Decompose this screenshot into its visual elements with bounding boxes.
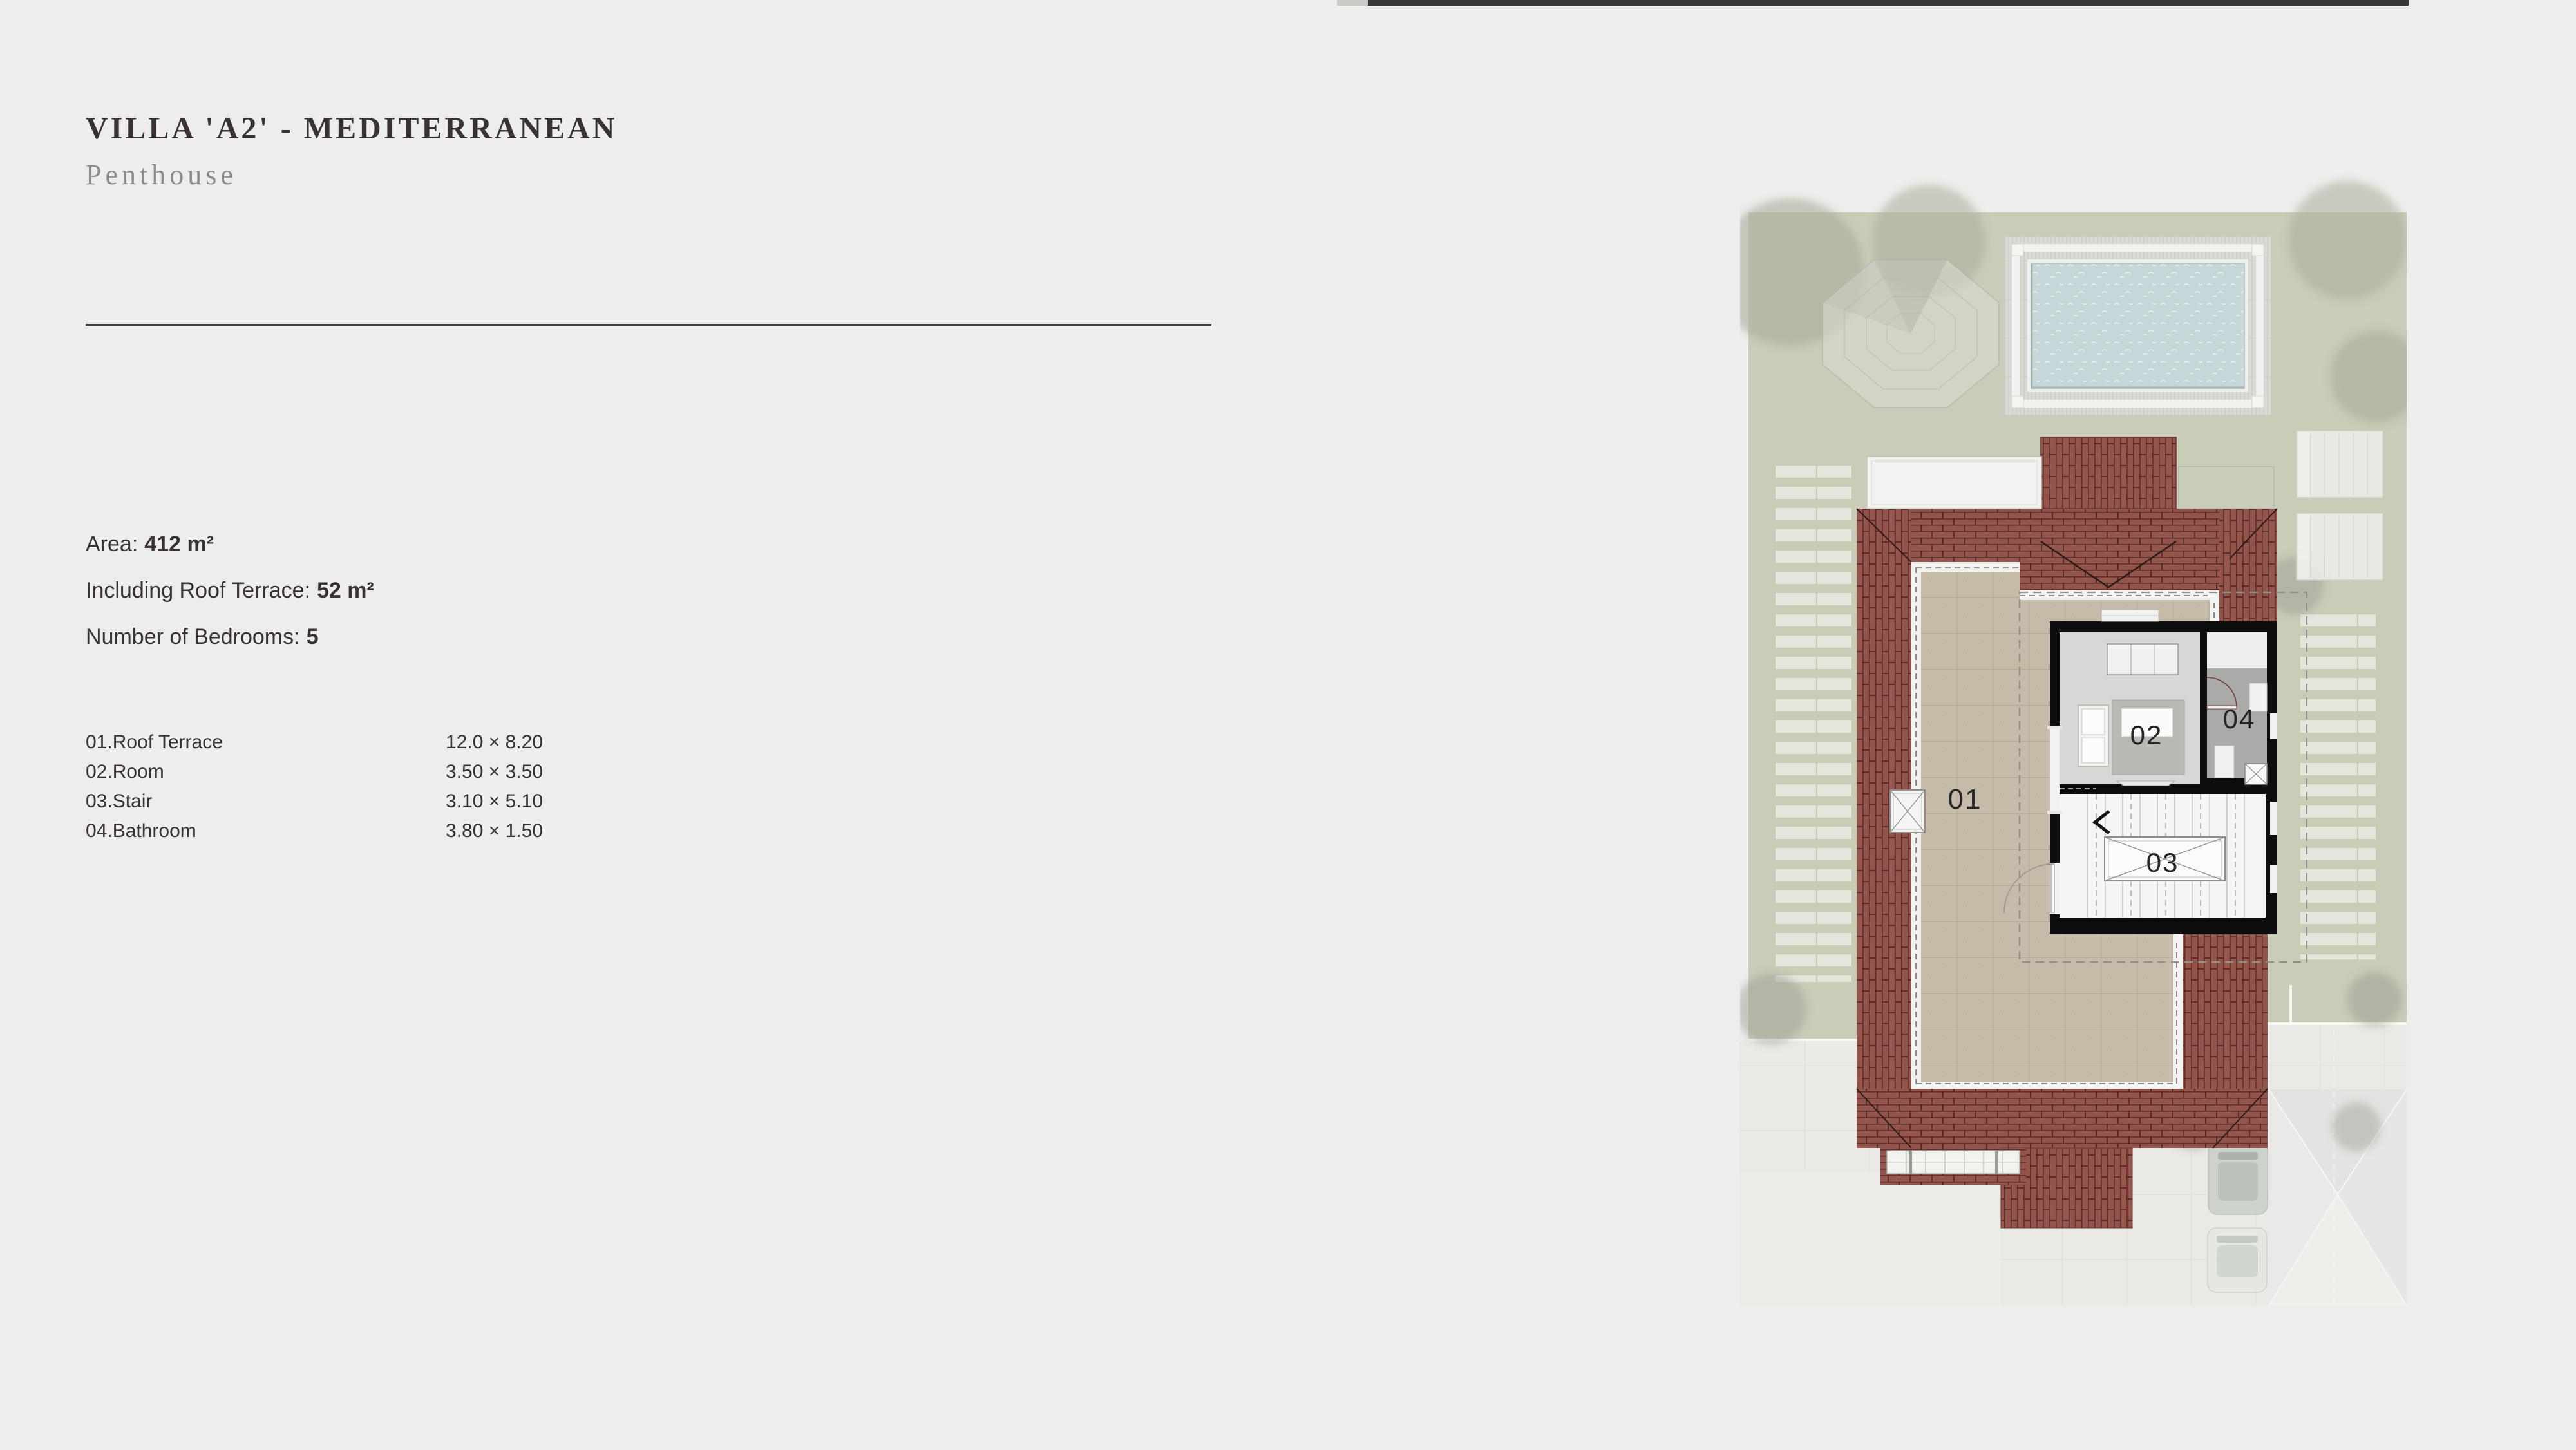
terrace-skylight (1890, 790, 1925, 833)
room-label-03: 03 (2146, 847, 2179, 878)
room-dimensions: 12.0 × 8.20 (401, 728, 543, 757)
page-subtitle: Penthouse (86, 158, 237, 191)
room-name: 03.Stair (86, 787, 152, 816)
room-dimensions: 3.10 × 5.10 (401, 787, 543, 816)
sofa (2078, 705, 2108, 766)
hedge-right (2300, 612, 2376, 959)
floor-plan: 01 02 03 04 (1740, 164, 2407, 1306)
detail-value: 412 m² (144, 532, 214, 556)
page-title: VILLA 'A2' - MEDITERRANEAN (86, 111, 617, 146)
property-details: Area:412 m² Including Roof Terrace:52 m²… (86, 529, 374, 668)
detail-label: Number of Bedrooms: (86, 625, 300, 649)
room-dimensions: 3.50 × 3.50 (401, 757, 543, 787)
car-bottom (2208, 1228, 2267, 1292)
swimming-pool (2004, 236, 2271, 415)
skylight-row (1887, 1151, 2020, 1174)
room-label-01: 01 (1948, 784, 1982, 816)
room-dimensions: 3.80 × 1.50 (401, 816, 543, 846)
hedge-left (1776, 457, 1851, 982)
tv-console (2117, 781, 2175, 786)
detail-area: Area:412 m² (86, 529, 374, 559)
pergola-octagon (1823, 259, 1999, 408)
room-name: 01.Roof Terrace (86, 728, 223, 757)
detail-label: Including Roof Terrace: (86, 578, 310, 603)
brochure-page: VILLA 'A2' - MEDITERRANEAN Penthouse Are… (0, 0, 2576, 1450)
bathroom-skylight (2245, 764, 2267, 784)
room-label-02: 02 (2130, 720, 2163, 751)
room-row: 01.Roof Terrace 12.0 × 8.20 (86, 728, 543, 757)
room-name: 04.Bathroom (86, 816, 196, 846)
detail-value: 52 m² (317, 578, 374, 603)
room-name: 02.Room (86, 757, 164, 787)
room-schedule: 01.Roof Terrace 12.0 × 8.20 02.Room 3.50… (86, 728, 543, 846)
top-edge-accent (1368, 0, 2409, 6)
room-row: 02.Room 3.50 × 3.50 (86, 757, 543, 787)
car-top (2208, 1142, 2268, 1214)
room-row: 04.Bathroom 3.80 × 1.50 (86, 816, 543, 846)
detail-label: Area: (86, 532, 138, 556)
divider-line (86, 324, 1211, 326)
detail-bedrooms: Number of Bedrooms:5 (86, 622, 374, 652)
detail-roof-terrace: Including Roof Terrace:52 m² (86, 576, 374, 605)
room-row: 03.Stair 3.10 × 5.10 (86, 787, 543, 816)
top-edge-accent-light (1337, 0, 1368, 6)
room-label-04: 04 (2223, 704, 2256, 735)
detail-value: 5 (307, 625, 319, 649)
